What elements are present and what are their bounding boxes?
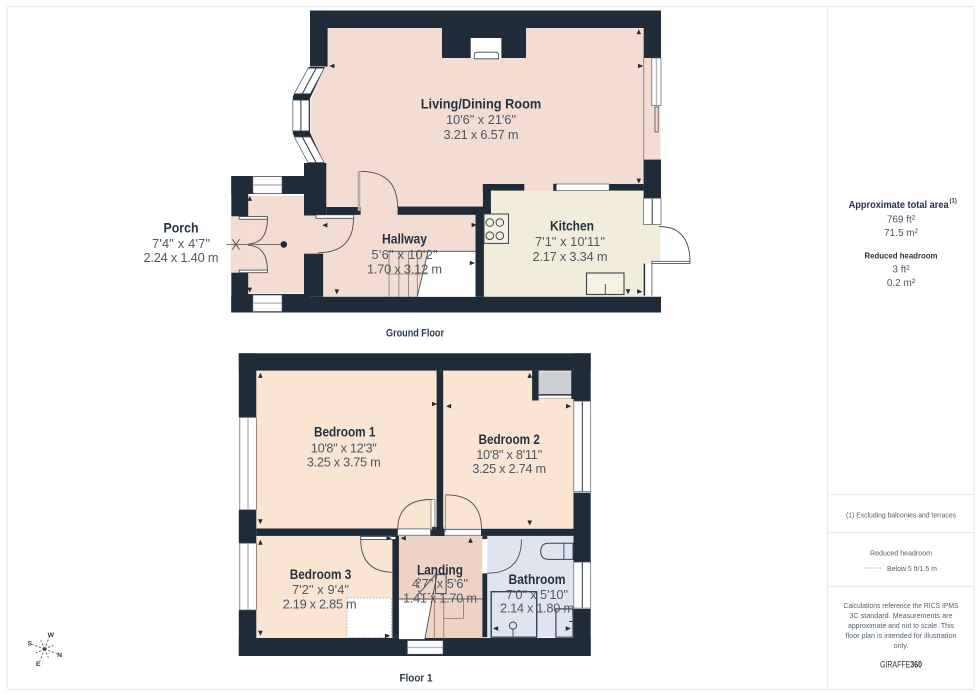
svg-text:769 ft²: 769 ft² — [887, 215, 916, 226]
svg-text:2.14 x 1.80 m: 2.14 x 1.80 m — [500, 601, 574, 616]
svg-text:Floor 1: Floor 1 — [400, 673, 433, 685]
svg-text:Approximate total area: Approximate total area — [849, 199, 949, 211]
svg-text:3 ft²: 3 ft² — [892, 265, 910, 276]
svg-text:Kitchen: Kitchen — [550, 218, 594, 234]
svg-text:2.24 x 1.40 m: 2.24 x 1.40 m — [144, 250, 219, 265]
svg-text:2.17 x 3.34 m: 2.17 x 3.34 m — [533, 249, 608, 264]
svg-text:3.21 x 6.57 m: 3.21 x 6.57 m — [444, 127, 519, 142]
svg-text:Below 5 ft/1.5 m: Below 5 ft/1.5 m — [887, 564, 937, 573]
svg-text:Ground Floor: Ground Floor — [386, 328, 445, 340]
svg-text:E: E — [36, 661, 41, 668]
svg-text:3C standard. Measurements are: 3C standard. Measurements are — [850, 611, 953, 620]
svg-text:3.25 x 3.75 m: 3.25 x 3.75 m — [307, 454, 381, 469]
svg-text:Bathroom: Bathroom — [509, 571, 566, 587]
svg-text:approximate and not to scale.: approximate and not to scale. This — [848, 621, 954, 630]
svg-text:2.19 x 2.85 m: 2.19 x 2.85 m — [283, 597, 357, 612]
svg-text:1.41 x 1.70 m: 1.41 x 1.70 m — [403, 590, 477, 605]
svg-text:3.25 x 2.74 m: 3.25 x 2.74 m — [472, 461, 546, 476]
svg-text:10'6" x 21'6": 10'6" x 21'6" — [446, 112, 516, 127]
svg-text:0.2 m²: 0.2 m² — [887, 278, 916, 289]
svg-text:N: N — [57, 652, 62, 659]
svg-text:S: S — [28, 641, 33, 648]
svg-text:(1): (1) — [950, 199, 957, 205]
svg-text:10'8" x 8'11": 10'8" x 8'11" — [476, 447, 542, 462]
svg-text:5'6" x 10'2": 5'6" x 10'2" — [372, 247, 438, 262]
svg-text:Reduced headroom: Reduced headroom — [870, 549, 932, 558]
svg-text:Hallway: Hallway — [382, 231, 427, 247]
svg-text:floor plan is intended for ill: floor plan is intended for illustration — [846, 631, 957, 640]
svg-text:Bedroom 2: Bedroom 2 — [478, 431, 540, 447]
svg-text:W: W — [48, 632, 55, 639]
svg-text:Bedroom 1: Bedroom 1 — [314, 424, 376, 440]
svg-text:Reduced headroom: Reduced headroom — [865, 251, 938, 261]
svg-text:71.5 m²: 71.5 m² — [884, 228, 919, 239]
svg-text:7'1" x 10'11": 7'1" x 10'11" — [535, 234, 605, 249]
svg-text:7'0" x 5'10": 7'0" x 5'10" — [506, 587, 568, 602]
svg-text:4'7" x 5'6": 4'7" x 5'6" — [412, 576, 468, 591]
svg-text:Bedroom 3: Bedroom 3 — [290, 566, 352, 582]
svg-text:(1) Excluding balconies and te: (1) Excluding balconies and terraces — [846, 511, 956, 520]
svg-text:Porch: Porch — [164, 220, 199, 236]
svg-text:10'8" x 12'3": 10'8" x 12'3" — [311, 440, 377, 455]
svg-text:7'2" x 9'4": 7'2" x 9'4" — [292, 582, 349, 597]
svg-text:Living/Dining Room: Living/Dining Room — [421, 96, 542, 112]
svg-text:Calculations reference the RIC: Calculations reference the RICS IPMS — [844, 601, 959, 610]
svg-text:1.70 x 3.12 m: 1.70 x 3.12 m — [367, 261, 442, 276]
svg-text:Landing: Landing — [417, 561, 463, 577]
svg-text:GIRAFFE360: GIRAFFE360 — [880, 660, 922, 670]
svg-text:only.: only. — [894, 641, 909, 650]
svg-text:7'4" x 4'7": 7'4" x 4'7" — [152, 236, 210, 251]
